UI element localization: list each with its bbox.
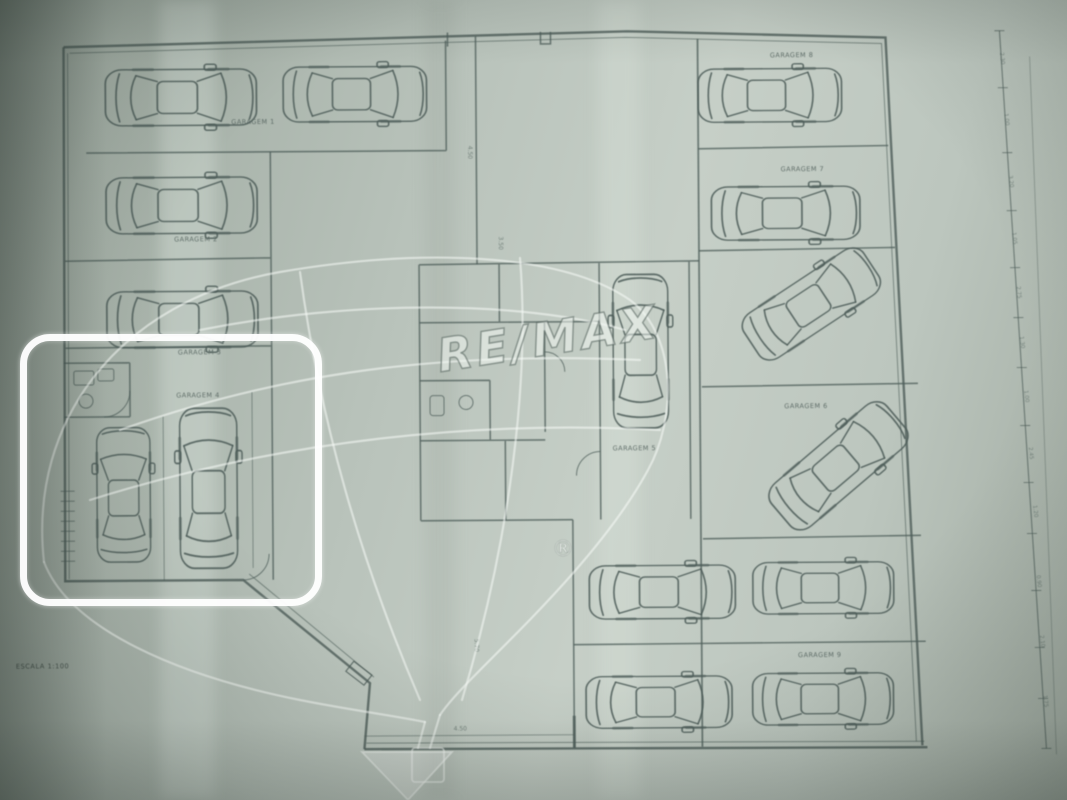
garage-label: GARAGEM 9 <box>798 651 842 659</box>
blueprint-photo: GARAGEM 1 GARAGEM 2 GARAGEM 3 GARAGEM 4 … <box>0 0 1067 800</box>
dimension-label: 4.50 <box>466 146 473 160</box>
ruler-value: 2.75 <box>1015 286 1022 299</box>
car-topview <box>711 181 860 245</box>
ruler-value: 2.30 <box>998 52 1005 65</box>
ruler-value: 1.20 <box>1031 505 1038 518</box>
garage-label: GARAGEM 3 <box>178 348 222 356</box>
garage-label: GARAGEM 6 <box>784 402 828 410</box>
ruler-value: 3.20 <box>1007 175 1014 188</box>
ruler-value: 2.10 <box>1038 635 1045 648</box>
dimension-label: 4.50 <box>454 725 468 732</box>
registered-symbol: ® <box>552 537 574 562</box>
garage-label: GARAGEM 8 <box>770 51 814 59</box>
garage-label: GARAGEM 5 <box>613 444 657 452</box>
car-topview <box>698 63 842 127</box>
dimension-label: 3.50 <box>497 236 504 250</box>
dimension-ruler: 2.30 1.00 3.20 1.05 2.75 1.30 1.00 2.45 … <box>994 30 1056 754</box>
garage-label: GARAGEM 1 <box>231 118 275 126</box>
car-topview <box>589 560 735 624</box>
garage-label: GARAGEM 4 <box>176 391 220 399</box>
floor-plan-drawing: GARAGEM 1 GARAGEM 2 GARAGEM 3 GARAGEM 4 … <box>0 0 1067 800</box>
car-topview <box>107 286 258 353</box>
car-topview <box>174 408 242 568</box>
ruler-value: 1.30 <box>1018 336 1025 349</box>
car-topview <box>106 172 257 239</box>
ruler-value: 1.05 <box>1010 232 1017 245</box>
car-topview <box>586 671 732 733</box>
car-topview <box>283 61 427 127</box>
garage-label: GARAGEM 7 <box>781 165 825 173</box>
car-topview <box>734 238 888 369</box>
scale-note: ESCALA 1:100 <box>16 662 69 670</box>
car-topview <box>753 557 894 619</box>
garage-label: GARAGEM 2 <box>174 235 218 243</box>
car-topview <box>752 668 893 730</box>
interior-walls <box>57 29 926 751</box>
ruler-value: 1.00 <box>1002 113 1009 126</box>
car-topview <box>760 392 918 540</box>
car-topview <box>92 427 156 562</box>
ruler-value: 1.75 <box>1041 695 1048 708</box>
